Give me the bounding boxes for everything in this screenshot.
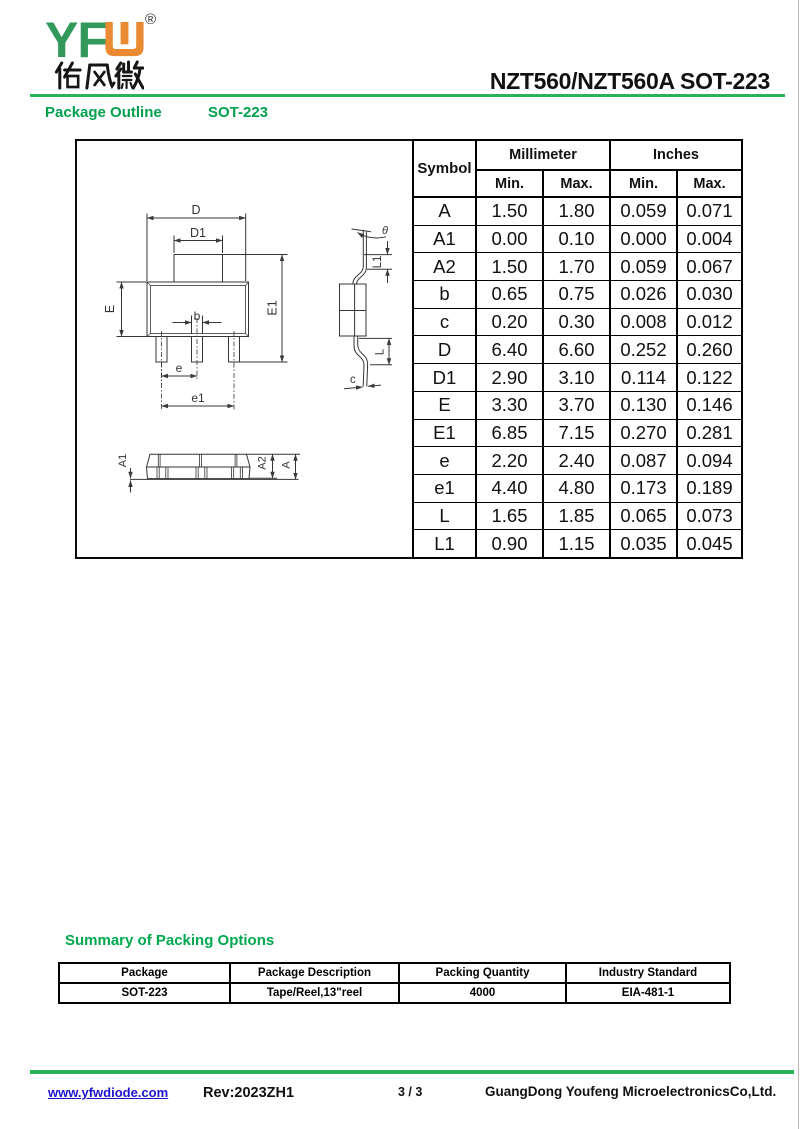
svg-text:L: L xyxy=(375,348,387,355)
svg-text:b: b xyxy=(194,309,201,323)
svg-text:D1: D1 xyxy=(190,226,206,240)
svg-text:e1: e1 xyxy=(191,391,205,405)
svg-text:E: E xyxy=(103,305,117,313)
svg-text:A1: A1 xyxy=(117,454,129,467)
svg-text:D: D xyxy=(191,203,200,217)
svg-text:A2: A2 xyxy=(257,456,269,469)
svg-text:E1: E1 xyxy=(266,300,280,315)
svg-text:θ: θ xyxy=(382,225,388,237)
svg-text:c: c xyxy=(350,374,356,386)
svg-text:e: e xyxy=(176,361,183,375)
svg-text:A: A xyxy=(281,461,293,469)
svg-text:L1: L1 xyxy=(372,256,384,269)
